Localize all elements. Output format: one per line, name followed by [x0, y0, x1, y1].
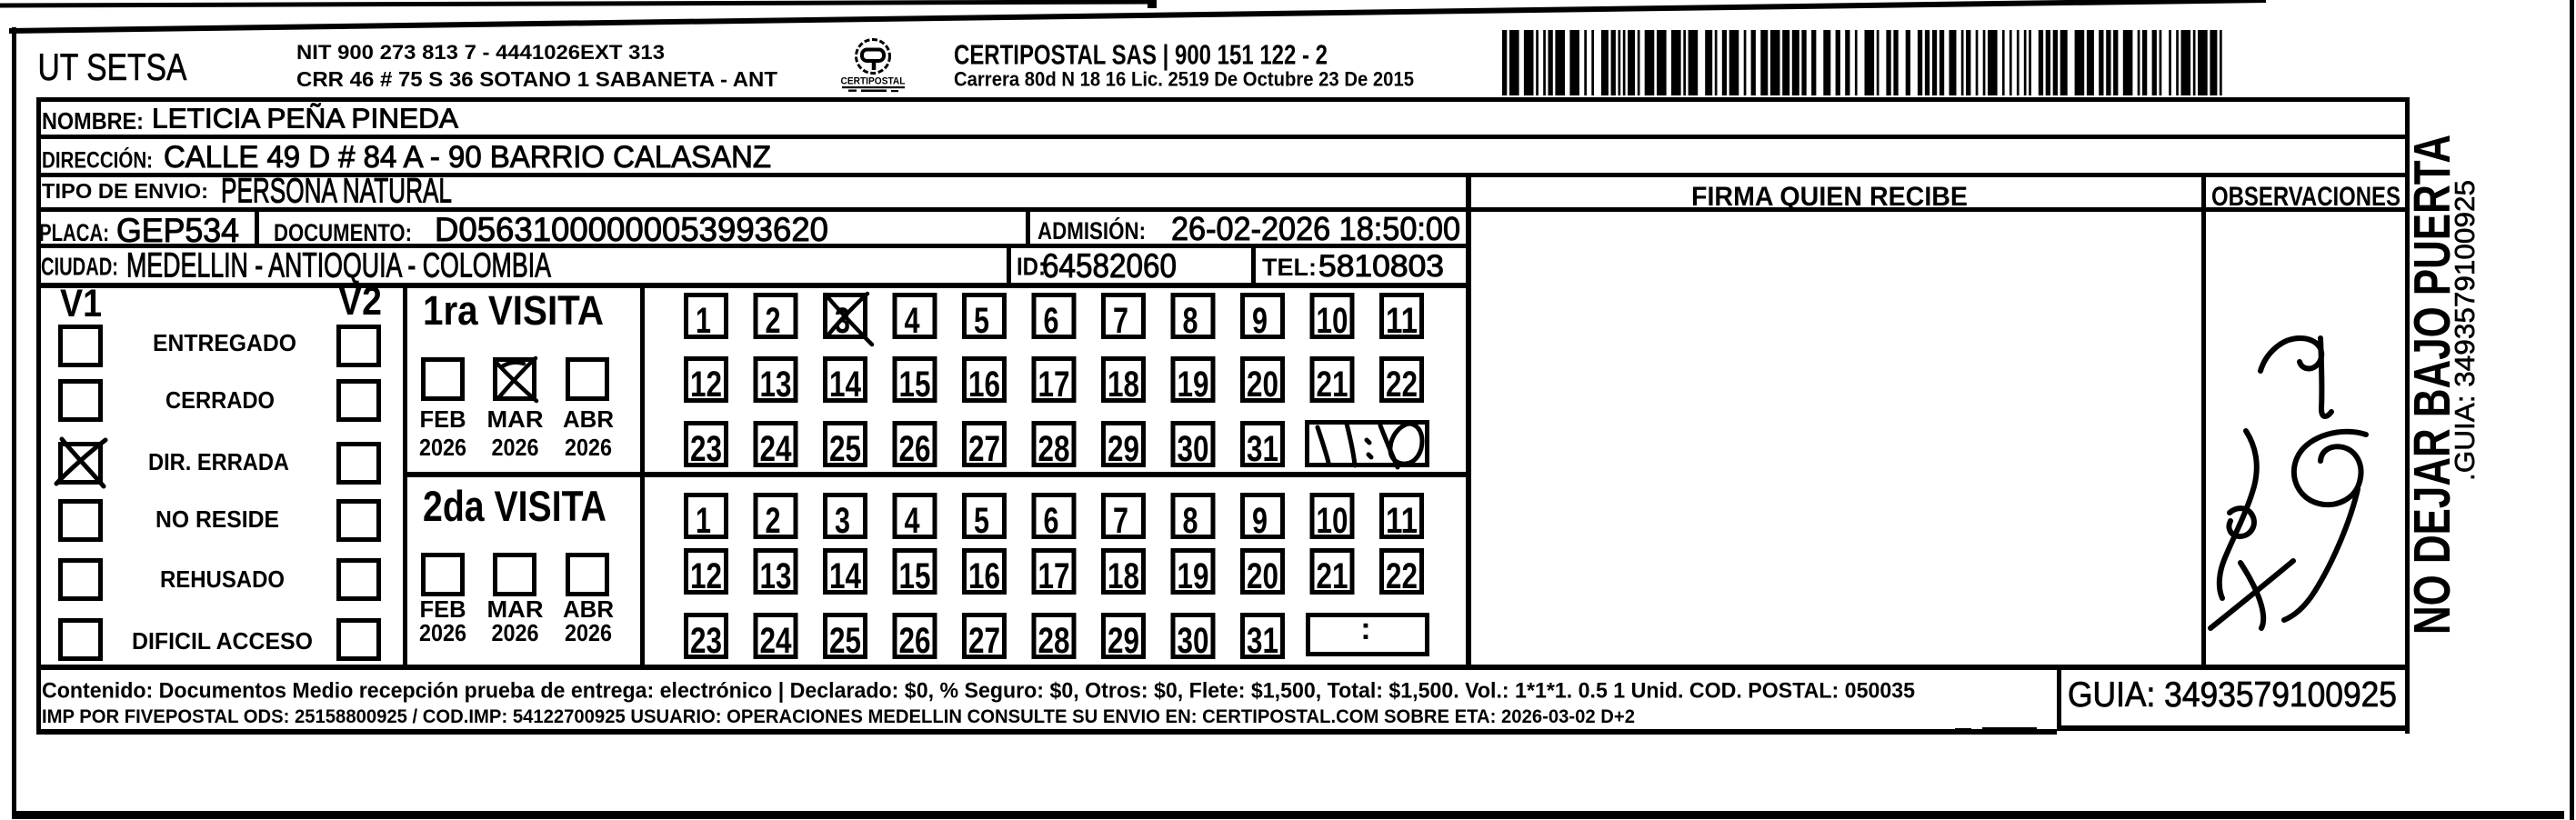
svg-text:CERTIPOSTAL SAS | 900 151 122: CERTIPOSTAL SAS | 900 151 122 - 2 [954, 39, 1328, 71]
svg-text:ENTREGADO: ENTREGADO [153, 329, 296, 356]
svg-text:1ra VISITA: 1ra VISITA [423, 287, 604, 334]
svg-text:D05631000000053993620: D05631000000053993620 [435, 211, 828, 248]
svg-text:NIT 900 273 813 7 - 4441026EXT: NIT 900 273 813 7 - 4441026EXT 313 [296, 41, 665, 64]
svg-text:21: 21 [1317, 365, 1348, 405]
svg-text:DOCUMENTO:: DOCUMENTO: [274, 219, 412, 246]
svg-text:25: 25 [829, 621, 861, 661]
svg-text:15: 15 [899, 556, 931, 596]
svg-text:Contenido: Documentos Medio re: Contenido: Documentos Medio recepción pr… [42, 680, 1915, 704]
svg-text:25: 25 [829, 429, 861, 469]
svg-text:16: 16 [968, 365, 1000, 405]
svg-text:V1: V1 [60, 282, 102, 325]
svg-text:CERRADO: CERRADO [165, 386, 275, 414]
svg-text:2da VISITA: 2da VISITA [423, 482, 606, 530]
svg-text:6: 6 [1044, 501, 1059, 541]
svg-text:21: 21 [1317, 556, 1348, 596]
svg-text:23: 23 [690, 429, 722, 469]
svg-text:30: 30 [1178, 429, 1209, 469]
svg-text:18: 18 [1108, 365, 1139, 405]
svg-text:64582060: 64582060 [1042, 247, 1177, 285]
svg-text:DIFICIL ACCESO: DIFICIL ACCESO [132, 627, 313, 655]
svg-text:OBSERVACIONES: OBSERVACIONES [2211, 182, 2401, 212]
svg-text:2026: 2026 [492, 434, 539, 461]
svg-text:GEP534: GEP534 [116, 212, 239, 249]
svg-text:29: 29 [1108, 429, 1139, 469]
svg-text:NOMBRE:: NOMBRE: [42, 109, 144, 135]
svg-text:.GUIA: 3493579100925: .GUIA: 3493579100925 [2449, 180, 2481, 481]
svg-text:15: 15 [899, 365, 931, 405]
svg-text:2026: 2026 [492, 619, 539, 646]
svg-text:8: 8 [1183, 301, 1198, 341]
svg-text:GUIA: 3493579100925: GUIA: 3493579100925 [2068, 675, 2397, 715]
svg-text:18: 18 [1108, 556, 1139, 596]
svg-text:V2: V2 [338, 279, 382, 324]
svg-text:26-02-2026 18:50:00: 26-02-2026 18:50:00 [1171, 210, 1460, 247]
svg-text:PERSONA NATURAL: PERSONA NATURAL [221, 173, 452, 211]
svg-text:2: 2 [766, 301, 781, 341]
svg-text:20: 20 [1247, 365, 1278, 405]
svg-text:24: 24 [760, 429, 793, 469]
svg-text:28: 28 [1038, 621, 1070, 661]
svg-text:2026: 2026 [419, 619, 466, 646]
svg-text:CRR 46 # 75 S 36 SOTANO 1 SABA: CRR 46 # 75 S 36 SOTANO 1 SABANETA - ANT [296, 67, 777, 91]
svg-text:NO RESIDE: NO RESIDE [155, 505, 279, 533]
svg-text:9: 9 [1252, 301, 1268, 341]
svg-text:Carrera 80d N 18 16 Lic. 2519: Carrera 80d N 18 16 Lic. 2519 De Octubre… [954, 67, 1414, 90]
svg-text:9: 9 [1252, 501, 1268, 541]
svg-text:11: 11 [1386, 301, 1418, 341]
svg-text:IMP POR FIVEPOSTAL ODS: 251588: IMP POR FIVEPOSTAL ODS: 25158800925 / CO… [42, 705, 1635, 727]
svg-text:1: 1 [696, 501, 711, 541]
svg-text:TEL:: TEL: [1262, 254, 1317, 281]
svg-text:16: 16 [968, 556, 1000, 596]
svg-text:24: 24 [760, 621, 793, 661]
svg-text:3: 3 [835, 501, 850, 541]
svg-text:CIUDAD:: CIUDAD: [41, 253, 118, 281]
svg-text:FIRMA QUIEN RECIBE: FIRMA QUIEN RECIBE [1691, 182, 1968, 212]
svg-text:11: 11 [1386, 501, 1418, 541]
svg-text:PLACA:: PLACA: [39, 219, 109, 246]
svg-text:7: 7 [1113, 301, 1128, 341]
svg-text:13: 13 [760, 365, 792, 405]
svg-text:MAR: MAR [487, 405, 544, 433]
svg-text:14: 14 [829, 365, 862, 405]
svg-text:2: 2 [766, 501, 781, 541]
svg-text:22: 22 [1386, 556, 1418, 596]
svg-text:31: 31 [1247, 621, 1278, 661]
svg-text:17: 17 [1038, 365, 1070, 405]
svg-text:4: 4 [905, 301, 921, 341]
svg-text:LETICIA PEÑA PINEDA: LETICIA PEÑA PINEDA [152, 103, 458, 135]
svg-text:6: 6 [1044, 301, 1059, 341]
svg-text:14: 14 [829, 556, 862, 596]
svg-text:23: 23 [690, 621, 722, 661]
svg-text:4: 4 [905, 501, 921, 541]
svg-text:5810803: 5810803 [1318, 249, 1444, 284]
svg-text:13: 13 [760, 556, 792, 596]
svg-text:19: 19 [1178, 365, 1209, 405]
svg-text:5: 5 [974, 501, 989, 541]
svg-text:26: 26 [899, 621, 931, 661]
svg-text:19: 19 [1178, 556, 1209, 596]
svg-text:27: 27 [968, 621, 1000, 661]
svg-text:ADMISIÓN:: ADMISIÓN: [1037, 216, 1146, 245]
svg-text:17: 17 [1038, 556, 1070, 596]
svg-text:27: 27 [968, 429, 1000, 469]
svg-text:REHUSADO: REHUSADO [160, 565, 285, 593]
svg-text:DIR. ERRADA: DIR. ERRADA [148, 448, 289, 475]
svg-text:29: 29 [1108, 621, 1139, 661]
svg-text:10: 10 [1317, 301, 1348, 341]
svg-text:28: 28 [1038, 429, 1070, 469]
svg-text:20: 20 [1247, 556, 1278, 596]
svg-text:31: 31 [1247, 429, 1278, 469]
svg-text:1: 1 [696, 301, 711, 341]
svg-text:CERTIPOSTAL: CERTIPOSTAL [841, 76, 906, 87]
svg-text:DIRECCIÓN:: DIRECCIÓN: [42, 146, 153, 174]
svg-text:12: 12 [690, 556, 722, 596]
svg-text::: : [1360, 612, 1370, 646]
svg-text:TIPO DE ENVIO:: TIPO DE ENVIO: [42, 179, 208, 203]
svg-text:26: 26 [899, 429, 931, 469]
svg-text:5: 5 [974, 301, 989, 341]
svg-text:ABR: ABR [563, 405, 614, 433]
svg-text:30: 30 [1178, 621, 1209, 661]
svg-text:10: 10 [1317, 501, 1348, 541]
svg-text:22: 22 [1386, 365, 1418, 405]
svg-text:2026: 2026 [565, 434, 612, 461]
svg-text:12: 12 [690, 365, 722, 405]
svg-text:8: 8 [1183, 501, 1198, 541]
svg-text:7: 7 [1113, 501, 1128, 541]
svg-text:CALLE 49 D # 84 A - 90 BARRIO: CALLE 49 D # 84 A - 90 BARRIO CALASANZ [164, 140, 771, 175]
svg-text:2026: 2026 [565, 619, 612, 646]
svg-text:UT SETSA: UT SETSA [38, 45, 187, 88]
svg-text:2026: 2026 [419, 434, 466, 461]
svg-text:FEB: FEB [420, 405, 466, 433]
